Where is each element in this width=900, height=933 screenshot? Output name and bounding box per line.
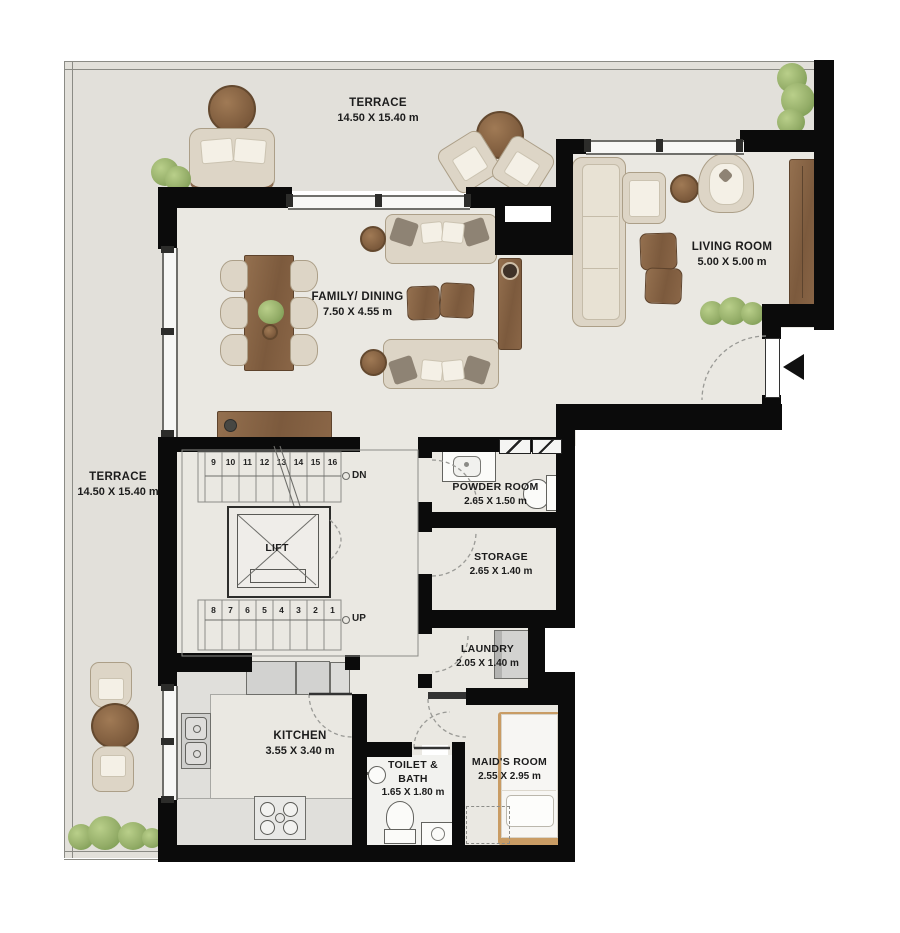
- door-jamb: [345, 655, 360, 670]
- wall: [762, 304, 834, 327]
- entry-hall-floor: [564, 326, 780, 408]
- window-mullion: [161, 430, 174, 437]
- pillow: [98, 678, 124, 700]
- wall: [158, 437, 360, 452]
- stair-step-number: 14: [291, 457, 306, 467]
- room-dims: 2.55 X 2.95 m: [452, 770, 567, 783]
- lift-label: LIFT: [247, 542, 307, 556]
- stair-step-number: 2: [308, 605, 323, 615]
- terrace-railing-top: [64, 61, 833, 70]
- armchair: [698, 153, 754, 213]
- doorway: [418, 532, 432, 574]
- stair-step-number: 7: [223, 605, 238, 615]
- wall: [158, 845, 575, 862]
- entry-door: [765, 338, 780, 398]
- room-label-terrace-top: TERRACE 14.50 X 15.40 m: [298, 96, 458, 125]
- cushion: [461, 355, 491, 385]
- stair-step-number: 11: [240, 457, 255, 467]
- room-name: LIVING ROOM: [662, 240, 802, 255]
- table-plant: [258, 300, 284, 324]
- pillow: [451, 145, 489, 182]
- wall: [158, 798, 177, 862]
- speaker: [501, 262, 519, 280]
- pillow: [100, 755, 126, 777]
- burner: [260, 820, 275, 835]
- room-name: TERRACE: [298, 96, 458, 111]
- stair-step-number: 13: [274, 457, 289, 467]
- pillow: [503, 150, 541, 187]
- room-label-toilet: TOILET & BATH 1.65 X 1.80 m: [375, 759, 451, 799]
- window-mullion: [584, 139, 591, 152]
- stair-step-number: 6: [240, 605, 255, 615]
- stair-step-number: 16: [325, 457, 340, 467]
- terrace-chair: [90, 662, 132, 708]
- burner: [283, 820, 298, 835]
- room-label-powder: POWDER ROOM 2.65 X 1.50 m: [433, 481, 558, 508]
- window-mullion: [736, 139, 743, 152]
- burner: [260, 802, 275, 817]
- dining-chair: [220, 260, 248, 292]
- living-sofa-chaise: [622, 172, 666, 224]
- sink-basin: [431, 827, 445, 841]
- sofa-seam: [582, 268, 618, 269]
- room-name: TERRACE: [64, 470, 172, 485]
- room-label-terrace-left: TERRACE 14.50 X 15.40 m: [64, 470, 172, 499]
- fridge: [296, 661, 330, 695]
- stair-step-number: 10: [223, 457, 238, 467]
- room-label-family: FAMILY/ DINING 7.50 X 4.55 m: [285, 290, 430, 319]
- lift-label-text: LIFT: [247, 542, 307, 556]
- wall: [352, 694, 367, 846]
- pillow: [233, 138, 267, 165]
- toilet-tank: [384, 829, 416, 844]
- stairs-up-label: UP: [352, 613, 366, 624]
- sink-drain: [464, 462, 469, 467]
- plant-leaf: [741, 302, 764, 325]
- burner: [283, 802, 298, 817]
- lift-detail: [250, 569, 306, 583]
- table-pot: [262, 324, 278, 340]
- window-mullion: [375, 194, 382, 207]
- terrace-railing-left: [64, 61, 73, 858]
- wall: [158, 653, 252, 672]
- terrace-round-table: [91, 703, 139, 749]
- vent-grille: [532, 439, 562, 454]
- room-name: LAUNDRY: [430, 643, 545, 657]
- wall-niche: [505, 206, 551, 222]
- wall: [740, 130, 820, 152]
- room-dims: 2.65 X 1.40 m: [440, 565, 562, 578]
- room-dims: 14.50 X 15.40 m: [64, 485, 172, 499]
- room-dims: 2.65 X 1.50 m: [433, 495, 558, 508]
- room-name: STORAGE: [440, 551, 562, 565]
- room-dims: 5.00 X 5.00 m: [662, 255, 802, 269]
- coffee-table: [644, 267, 682, 304]
- room-label-storage: STORAGE 2.65 X 1.40 m: [440, 551, 562, 578]
- sofa-seat: [582, 164, 620, 320]
- plant: [68, 814, 164, 854]
- window-mullion: [286, 194, 293, 207]
- side-table: [360, 226, 386, 252]
- room-name: KITCHEN: [238, 729, 362, 744]
- cushion: [441, 359, 465, 382]
- stove: [254, 796, 306, 840]
- dining-chair: [220, 297, 248, 329]
- wall: [158, 187, 292, 208]
- bath-sink: [421, 822, 454, 846]
- stair-step-number: 15: [308, 457, 323, 467]
- room-name: MAID'S ROOM: [452, 756, 567, 770]
- bench: [217, 411, 332, 439]
- room-dims: 14.50 X 15.40 m: [298, 111, 458, 125]
- console-line: [802, 166, 803, 298]
- powder-sink: [442, 450, 496, 482]
- bench-knob: [224, 419, 237, 432]
- side-table: [360, 349, 387, 376]
- bed-fold: [501, 790, 556, 791]
- sink-drain: [193, 725, 201, 733]
- window-mullion: [161, 246, 174, 253]
- sofa-seam: [582, 216, 618, 217]
- terrace-chair: [92, 746, 134, 792]
- plant-hedge: [775, 63, 817, 135]
- window-mullion: [161, 738, 174, 745]
- side-table: [670, 174, 699, 203]
- stairs-down-label: DN: [352, 470, 366, 481]
- stair-step-number: 5: [257, 605, 272, 615]
- stair-step-number: 1: [325, 605, 340, 615]
- wall: [418, 512, 558, 528]
- pillow: [506, 795, 554, 827]
- window: [162, 248, 178, 437]
- cushion: [441, 221, 465, 244]
- window-mullion: [161, 796, 174, 803]
- terrace-lounge-sofa: [189, 128, 275, 191]
- terrace-round-table: [208, 85, 256, 133]
- coffee-table: [439, 282, 475, 319]
- stair-step-number: 12: [257, 457, 272, 467]
- sink-basin: [185, 742, 207, 765]
- kitchen-sink: [181, 713, 211, 769]
- room-name: TOILET & BATH: [375, 759, 451, 786]
- plant-leaf: [88, 816, 122, 850]
- stair-step-number: 4: [274, 605, 289, 615]
- console-table: [498, 258, 522, 350]
- floor-plan: LIFT 9 10 11 12 13 14 15 16 8 7 6 5 4 3 …: [0, 0, 900, 933]
- wall: [158, 187, 177, 249]
- plant: [700, 297, 764, 327]
- room-dims: 7.50 X 4.55 m: [285, 305, 430, 319]
- wall: [556, 404, 782, 430]
- stair-step-number: 8: [206, 605, 221, 615]
- dining-chair: [290, 334, 318, 366]
- room-dims: 2.05 X 1.40 m: [430, 657, 545, 670]
- burner-center: [275, 813, 285, 823]
- pillow: [200, 138, 234, 165]
- cushion: [460, 217, 490, 247]
- sink-basin: [185, 717, 207, 740]
- family-sofa: [383, 339, 499, 389]
- cushion: [629, 180, 660, 217]
- room-label-living: LIVING ROOM 5.00 X 5.00 m: [662, 240, 802, 269]
- cushion: [420, 221, 444, 244]
- room-name: FAMILY/ DINING: [285, 290, 430, 305]
- room-dims: 3.55 X 3.40 m: [238, 744, 362, 758]
- entry-arrow-icon: [783, 354, 804, 380]
- sink-drain: [193, 750, 201, 758]
- doorway: [418, 458, 432, 502]
- dining-chair: [290, 260, 318, 292]
- window: [586, 140, 744, 155]
- living-sofa: [572, 157, 626, 327]
- room-label-kitchen: KITCHEN 3.55 X 3.40 m: [238, 729, 362, 758]
- cushion: [389, 217, 419, 247]
- vent-grille: [499, 439, 531, 454]
- maid-door-leaf: [428, 692, 466, 699]
- window-mullion: [656, 139, 663, 152]
- dining-chair: [220, 334, 248, 366]
- room-label-laundry: LAUNDRY 2.05 X 1.40 m: [430, 643, 545, 670]
- wall: [418, 610, 575, 628]
- window-mullion: [161, 684, 174, 691]
- stair-step-number: 3: [291, 605, 306, 615]
- closet-outline: [466, 806, 510, 844]
- family-sofa: [385, 214, 497, 264]
- room-dims: 1.65 X 1.80 m: [375, 786, 451, 799]
- window-mullion: [161, 328, 174, 335]
- fridge: [246, 661, 296, 695]
- room-label-maid: MAID'S ROOM 2.55 X 2.95 m: [452, 756, 567, 783]
- window-mullion: [464, 194, 471, 207]
- wall: [814, 60, 834, 330]
- room-name: POWDER ROOM: [433, 481, 558, 495]
- cushion: [388, 355, 418, 385]
- stair-step-number: 9: [206, 457, 221, 467]
- wall: [556, 430, 575, 614]
